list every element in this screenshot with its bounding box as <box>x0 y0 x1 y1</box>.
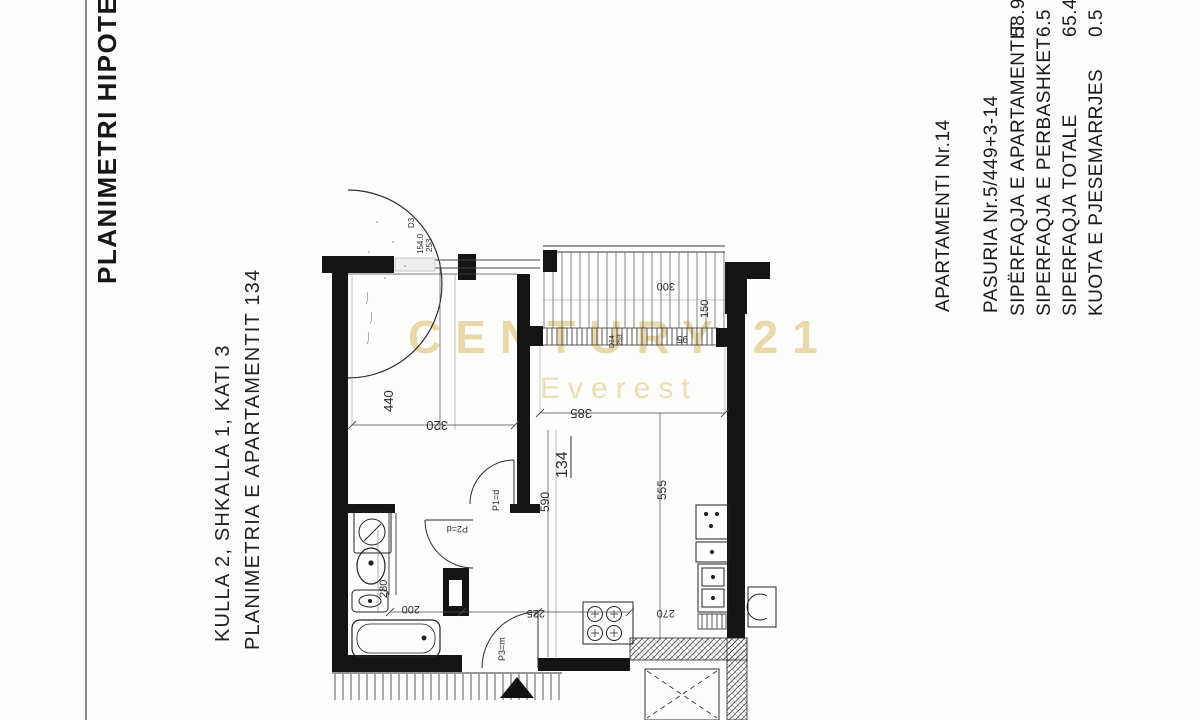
entrance-door-arc <box>348 190 442 378</box>
door-label-p3: P3=m <box>497 637 507 661</box>
dim-590: 590 <box>538 492 552 512</box>
dim-555: 555 <box>655 480 669 500</box>
document-side-title: PLANIMETRI HIPOTEKORE <box>92 0 123 284</box>
door-label-p2: P2=d <box>447 524 468 534</box>
dim-270: 270 <box>657 607 675 619</box>
surface-common-value: 6.5 <box>1034 9 1056 37</box>
entrance-threshold <box>395 258 435 271</box>
top-balcony-railing <box>543 246 725 328</box>
door-label-p1: P1=d <box>491 490 501 511</box>
left-rule-line <box>85 0 87 720</box>
surface-total-value: 65.4 <box>1060 0 1082 37</box>
room-number-label: 134 <box>554 451 571 478</box>
radiator-symbol <box>747 587 776 627</box>
entry-label-radius: 154.0 <box>416 233 425 254</box>
surface-apartment-label: SIPËRFAQJA E APARTAMENTIT <box>1008 22 1030 316</box>
balcony-label-253: 253 <box>617 334 624 346</box>
elevator-shaft-symbol <box>645 669 719 720</box>
dim-280: 280 <box>378 580 390 598</box>
entry-label-d3: D3 <box>407 217 416 228</box>
living-room-window-band <box>527 326 730 347</box>
dim-320: 320 <box>426 418 448 433</box>
dim-385: 385 <box>570 406 592 421</box>
stove-symbol <box>583 602 633 644</box>
dim-95: 95 <box>676 333 688 344</box>
kitchen-counter-symbol <box>696 505 729 562</box>
apartment-number-text: APARTAMENTI Nr.14 <box>933 119 955 312</box>
participation-quota-label: KUOTA E PJESEMARRJES <box>1086 69 1108 316</box>
dim-225: 225 <box>527 607 545 619</box>
bathtub-symbol <box>352 620 440 657</box>
caption-building-line: KULLA 2, SHKALLA 1, KATI 3 <box>212 344 235 642</box>
surface-total-label: SIPERFAQJA TOTALE <box>1060 114 1082 316</box>
dim-150: 150 <box>699 300 711 318</box>
surface-common-label: SIPERFAQJA E PERBASHKET <box>1034 37 1056 316</box>
floor-plan-drawing: 440 320 385 134 590 555 280 200 225 270 … <box>315 180 795 720</box>
dim-300: 300 <box>657 280 675 292</box>
surface-apartment-value: 58.9 <box>1008 0 1030 37</box>
dim-440: 440 <box>381 390 396 412</box>
balcony-label-d14: D14 <box>609 335 616 348</box>
door-p3 <box>482 612 538 668</box>
entry-label-253: 253 <box>425 238 434 252</box>
bathroom-partition-wall <box>389 513 396 595</box>
washing-machine-symbol <box>354 511 391 553</box>
dim-200: 200 <box>402 603 420 615</box>
hatched-walls <box>630 638 747 720</box>
caption-planimetry-line: PLANIMETRIA E APARTAMENTIT 134 <box>242 269 265 650</box>
kitchen-sink-symbol <box>698 564 728 612</box>
wc-door-jamb-notch <box>449 580 462 606</box>
participation-quota-value: 0.5 <box>1086 9 1108 37</box>
kitchen-cabinet-hatched <box>698 614 726 629</box>
property-number-text: PASURIA Nr.5/449+3-14 <box>981 95 1003 313</box>
